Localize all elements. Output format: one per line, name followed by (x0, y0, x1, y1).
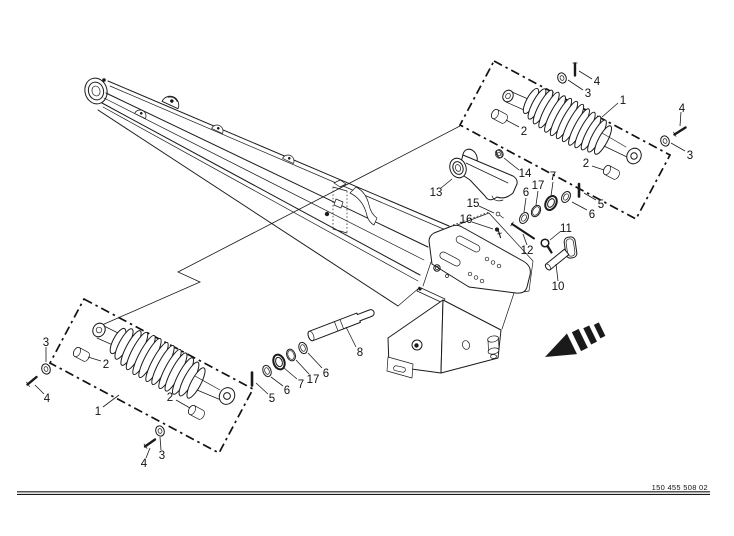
bushing (602, 164, 621, 181)
callout-label: 7 (298, 379, 304, 391)
callout-label: 4 (594, 76, 601, 88)
spring-rear-eye (624, 146, 644, 167)
callout-label: 17 (532, 180, 545, 192)
callout-label: 4 (679, 103, 686, 115)
frame-weldment (387, 212, 533, 378)
footer: 150 455 508 02 (17, 483, 710, 494)
callout-label: 17 (307, 374, 320, 386)
callout-label: 3 (159, 450, 165, 462)
spring-front-eye (501, 88, 515, 103)
callout-label: 2 (103, 359, 109, 371)
cotter-pin-small (674, 128, 686, 137)
callout-label: 13 (430, 187, 443, 199)
bushing (72, 346, 91, 363)
spring-rear-eye (216, 385, 237, 407)
callout-label: 4 (141, 458, 148, 470)
cotter-pin-small (144, 440, 155, 449)
callout-label: 7 (550, 171, 556, 183)
seal-ring (518, 211, 531, 225)
callout-label: 16 (460, 214, 473, 226)
coil-spring (520, 87, 614, 157)
callout-label: 10 (552, 281, 565, 293)
pivot-bolt (102, 78, 106, 82)
parts-diagram-page: 4 3 1 4 3 2 2 5 6 7 17 6 14 13 15 16 12 … (0, 0, 734, 536)
callout-label: 1 (95, 406, 101, 418)
callout-label: 11 (560, 223, 572, 235)
callout-label: 5 (598, 199, 604, 211)
cotter-pin-long (511, 222, 534, 239)
shaft (307, 307, 376, 341)
washer (154, 425, 165, 438)
callout-label: 3 (585, 88, 591, 100)
callout-label: 12 (521, 245, 534, 257)
boom-arm (82, 76, 449, 306)
washer (659, 135, 670, 148)
callout-label: 6 (589, 209, 595, 221)
reference-line (102, 126, 460, 325)
cotter-pin-small (573, 63, 577, 76)
callout-label: 1 (620, 95, 626, 107)
hose-clamp-lug (162, 93, 182, 108)
seal-ring-heavy (543, 194, 559, 212)
spring-anchor-fork (325, 187, 377, 225)
seal-ring (560, 190, 573, 204)
callout-label: 6 (323, 368, 329, 380)
parts-diagram-canvas: 4 3 1 4 3 2 2 5 6 7 17 6 14 13 15 16 12 … (0, 0, 734, 536)
grease-plug (414, 343, 418, 347)
hose-clamp-lug (212, 123, 225, 134)
spring-assembly-bottom (50, 299, 253, 453)
bushing (187, 404, 206, 421)
set-screw (496, 212, 503, 218)
linch-pin (541, 239, 551, 252)
direction-arrow-icon (540, 319, 607, 368)
callout-label: 15 (467, 198, 480, 210)
seal-ring (297, 341, 308, 355)
washer (556, 72, 567, 85)
seal-ring (529, 204, 542, 219)
callout-label: 8 (357, 347, 363, 359)
doc-number: 150 455 508 02 (652, 483, 708, 492)
callout-label: 6 (523, 187, 529, 199)
seal-ring (261, 364, 272, 378)
callout-label: 14 (519, 168, 532, 180)
washer (40, 363, 51, 376)
callout-label: 4 (44, 393, 51, 405)
callout-label: 6 (284, 385, 290, 397)
callout-label: 3 (687, 150, 693, 162)
bushing (490, 108, 509, 125)
callout-label: 3 (43, 337, 49, 349)
flange-nut (494, 149, 504, 160)
hose-clamp-lug (283, 153, 296, 164)
seal-ring (285, 348, 297, 362)
callout-label: 5 (269, 393, 275, 405)
callout-label: 2 (583, 158, 589, 170)
callout-label: 2 (167, 392, 173, 404)
callout-label: 2 (521, 126, 527, 138)
